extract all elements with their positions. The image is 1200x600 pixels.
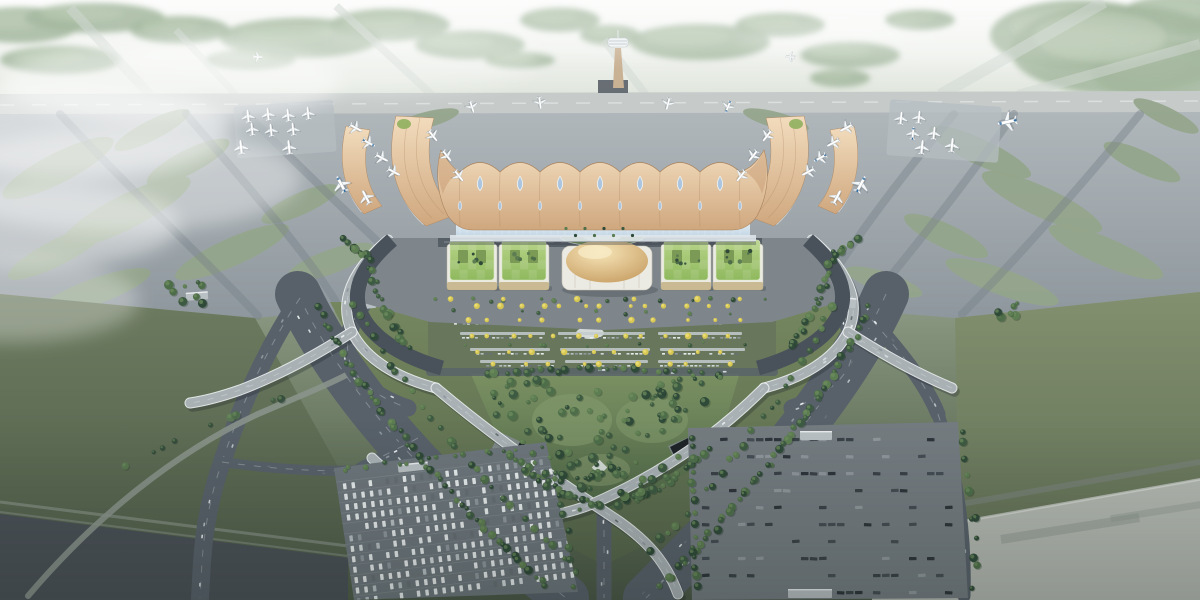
vignette — [0, 0, 1200, 600]
airport-aerial-render — [0, 0, 1200, 600]
airport-aerial-scene — [0, 0, 1200, 600]
